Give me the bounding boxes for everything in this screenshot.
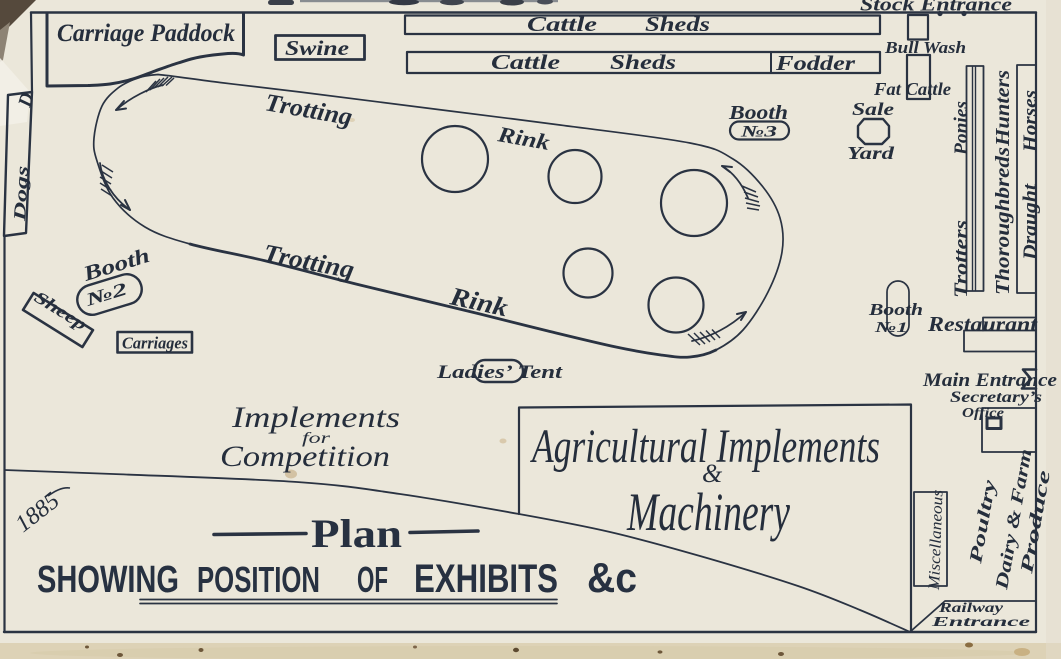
svg-text:Main Entrance: Main Entrance bbox=[922, 370, 1058, 391]
svg-text:Swine: Swine bbox=[285, 36, 349, 60]
svg-text:Booth: Booth bbox=[868, 300, 923, 319]
svg-text:Plan: Plan bbox=[311, 511, 402, 556]
svg-text:Restaurant: Restaurant bbox=[927, 312, 1038, 336]
svg-text:Stock Entrance: Stock Entrance bbox=[860, 0, 1013, 16]
svg-text:OF: OF bbox=[357, 559, 388, 600]
svg-text:Railway: Railway bbox=[938, 601, 1004, 616]
svg-text:Ponies: Ponies bbox=[951, 101, 972, 156]
svg-text:Miscellaneous: Miscellaneous bbox=[926, 490, 947, 592]
svg-text:Cattle: Cattle bbox=[491, 50, 560, 74]
svg-text:Trotters: Trotters bbox=[951, 220, 972, 298]
svg-text:Thoroughbreds: Thoroughbreds bbox=[992, 147, 1014, 295]
svg-text:Fodder: Fodder bbox=[775, 51, 856, 75]
svg-text:Carriages: Carriages bbox=[122, 334, 188, 353]
svg-text:Yard: Yard bbox=[847, 143, 895, 163]
svg-text:Competition: Competition bbox=[220, 440, 390, 473]
svg-text:Office: Office bbox=[962, 405, 1004, 420]
svg-text:Secretary’s: Secretary’s bbox=[950, 389, 1042, 406]
svg-text:Bull Wash: Bull Wash bbox=[884, 38, 966, 57]
svg-text:Ladies’ Tent: Ladies’ Tent bbox=[436, 362, 563, 383]
svg-text:№1: №1 bbox=[873, 320, 908, 336]
svg-text:Entrance: Entrance bbox=[930, 615, 1030, 630]
svg-text:EXHIBITS: EXHIBITS bbox=[414, 557, 558, 601]
svg-text:№3: №3 bbox=[739, 124, 777, 141]
svg-text:Carriage Paddock: Carriage Paddock bbox=[57, 20, 235, 47]
svg-text:Horses: Horses bbox=[1020, 90, 1041, 153]
svg-text:Cattle: Cattle bbox=[527, 12, 597, 36]
svg-text:Machinery: Machinery bbox=[626, 482, 790, 542]
svg-text:Hunters: Hunters bbox=[992, 70, 1014, 147]
svg-text:Sale: Sale bbox=[852, 99, 894, 119]
svg-text:Draught: Draught bbox=[1020, 183, 1041, 261]
svg-text:Sheds: Sheds bbox=[645, 12, 710, 36]
svg-text:Booth: Booth bbox=[728, 102, 788, 124]
svg-text:SHOWING: SHOWING bbox=[37, 559, 179, 601]
svg-text:&c: &c bbox=[587, 554, 637, 601]
svg-text:Fat Cattle: Fat Cattle bbox=[873, 79, 951, 99]
svg-text:POSITION: POSITION bbox=[197, 559, 320, 600]
svg-text:Sheds: Sheds bbox=[610, 50, 676, 74]
svg-text:Dogs: Dogs bbox=[10, 165, 32, 223]
